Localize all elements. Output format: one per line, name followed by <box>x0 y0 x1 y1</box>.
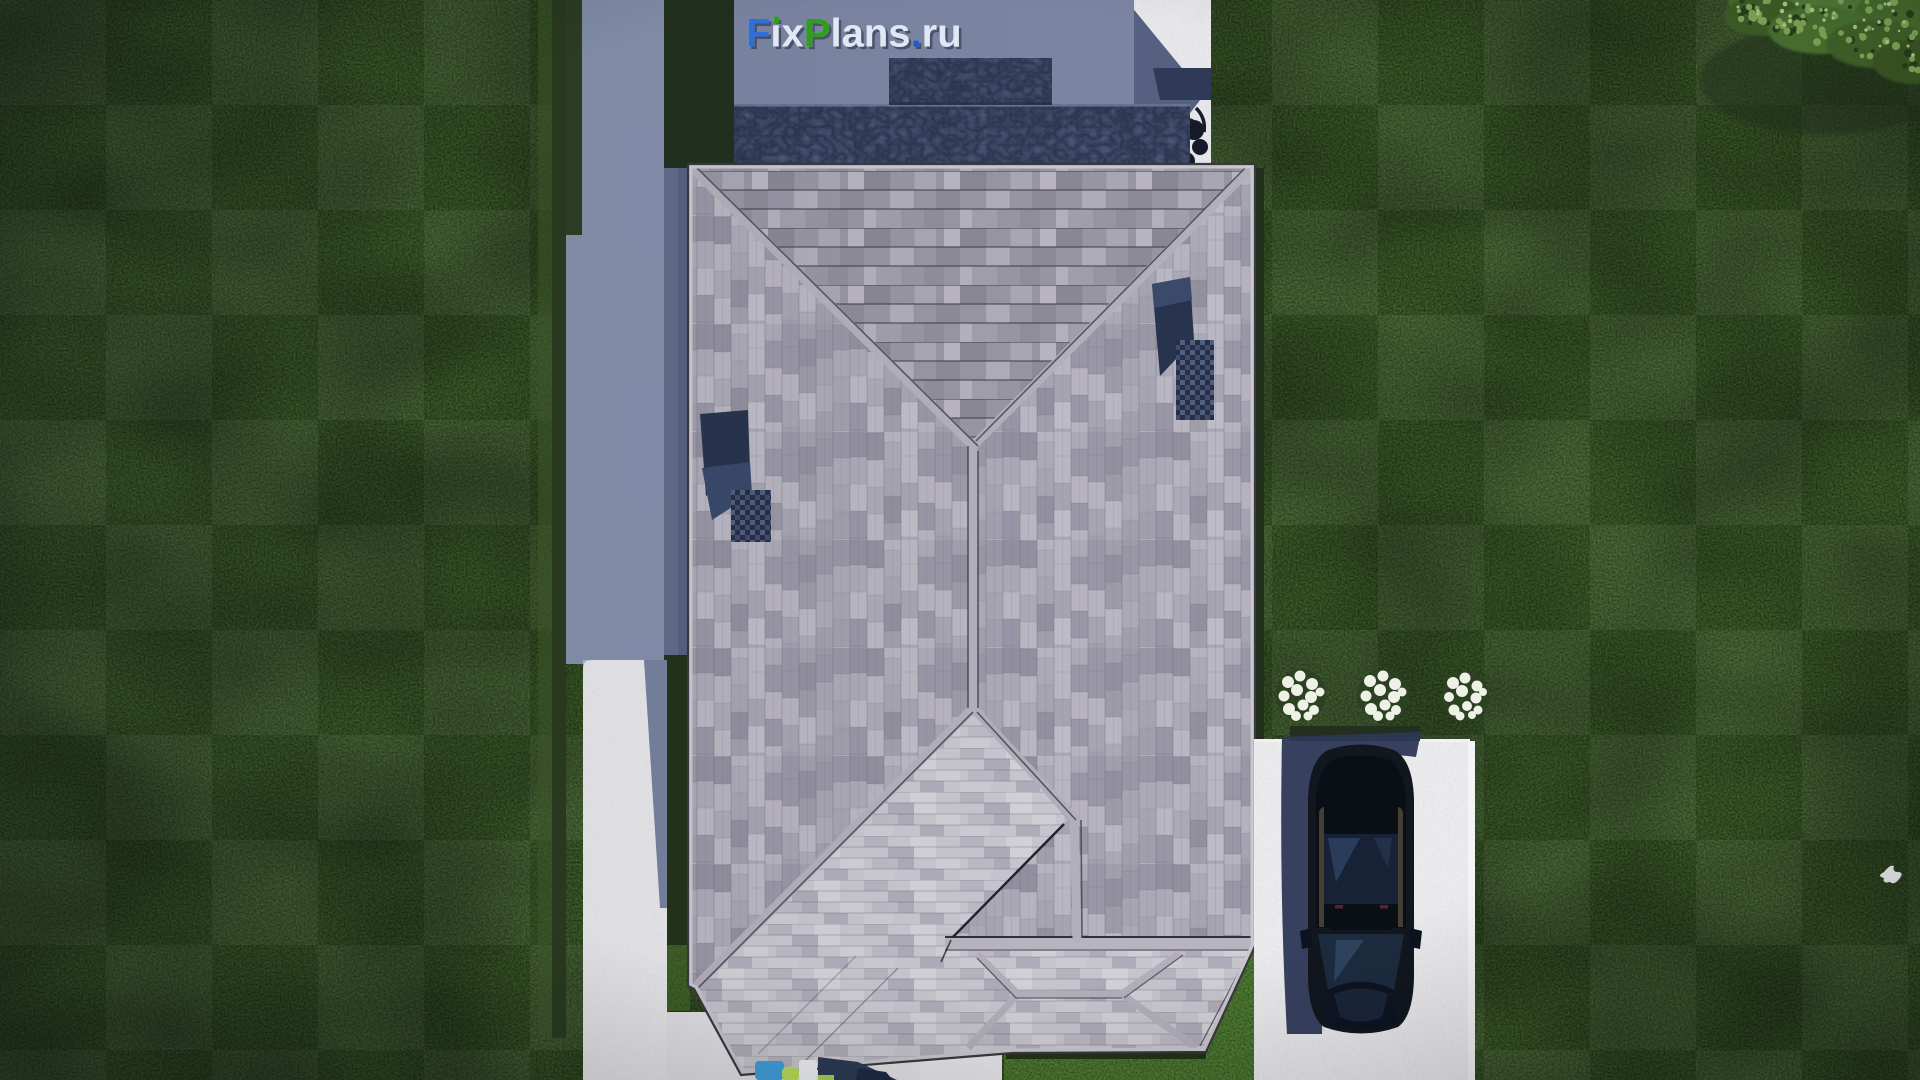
svg-text:.: . <box>911 12 922 56</box>
svg-text:P: P <box>804 12 831 56</box>
svg-text:F: F <box>746 12 770 56</box>
